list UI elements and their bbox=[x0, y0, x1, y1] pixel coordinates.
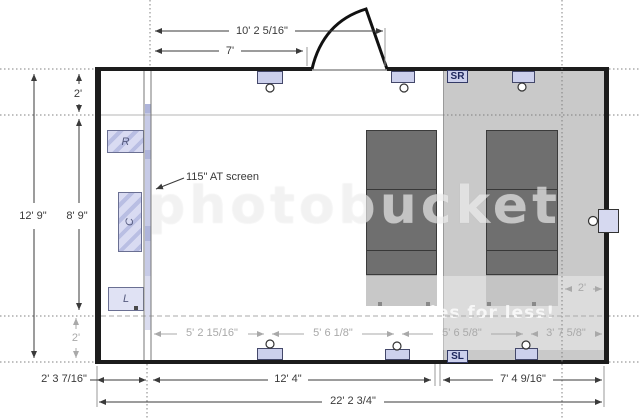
dim-screen-to-door-far: 10' 2 5/16" bbox=[236, 25, 288, 37]
dim-top-offset: 2' bbox=[74, 88, 82, 100]
dim-wall-to-screen: 2' 3 7/16" bbox=[41, 373, 87, 385]
dim-span-4: 3' 7 5/8" bbox=[546, 327, 586, 339]
dim-screen-to-door-near: 7' bbox=[226, 45, 234, 57]
speaker-knob-icons bbox=[266, 83, 598, 350]
dim-room-depth: 12' 9" bbox=[19, 210, 46, 222]
dim-screen-to-riser: 12' 4" bbox=[274, 373, 301, 385]
dim-span-1: 5' 2 15/16" bbox=[186, 327, 238, 339]
dim-riser-rear-gap: 2' bbox=[578, 282, 586, 294]
door-swing bbox=[312, 9, 387, 69]
extension-lines bbox=[97, 28, 604, 407]
dim-riser-depth: 7' 4 9/16" bbox=[500, 373, 546, 385]
screen-annotation: 115" AT screen bbox=[186, 171, 259, 183]
dim-room-width: 22' 2 3/4" bbox=[330, 395, 376, 407]
dim-bottom-offset: 2' bbox=[72, 332, 80, 344]
dim-span-2: 5' 6 1/8" bbox=[313, 327, 353, 339]
dim-speaker-plane-depth: 8' 9" bbox=[66, 210, 87, 222]
dim-span-3: 5' 6 5/8" bbox=[442, 327, 482, 339]
guide-lines bbox=[0, 0, 639, 419]
diagram-overlay bbox=[0, 0, 639, 419]
interior-guide-lines bbox=[101, 70, 604, 316]
door-knob-icon bbox=[589, 217, 598, 226]
screen-edges bbox=[144, 71, 151, 360]
floor-plan-canvas: photobucket ies for less! R C L SR SL bbox=[0, 0, 639, 419]
dimension-lines-dark bbox=[34, 31, 602, 402]
